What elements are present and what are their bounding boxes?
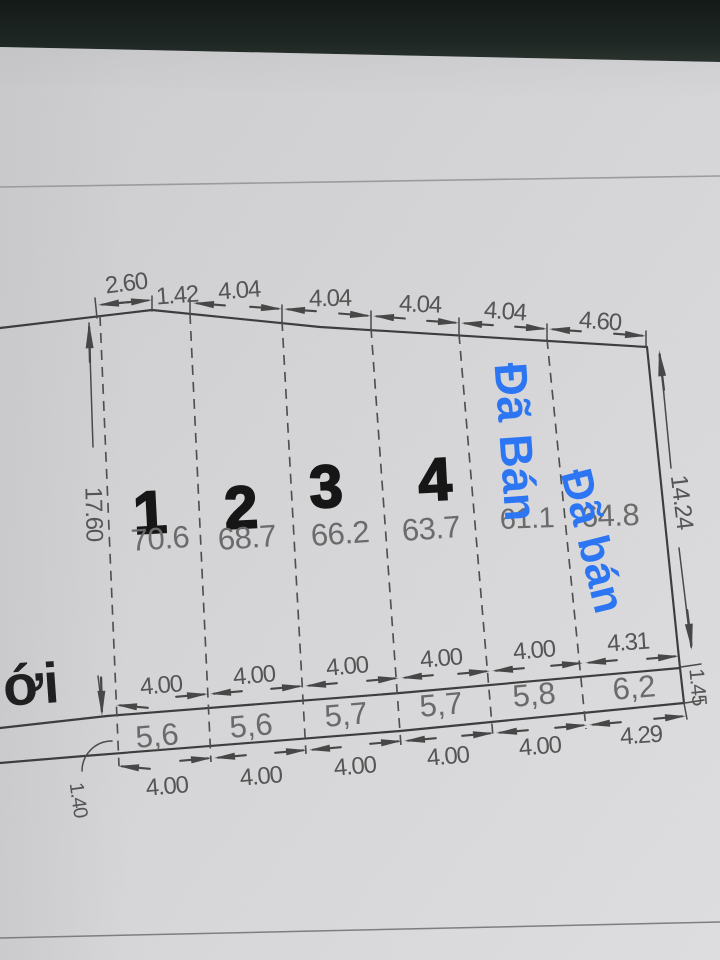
svg-text:4.31: 4.31 (606, 628, 651, 658)
svg-text:3: 3 (308, 452, 345, 521)
svg-text:4.04: 4.04 (399, 290, 443, 318)
svg-text:2.60: 2.60 (104, 267, 150, 299)
svg-text:4.00: 4.00 (232, 660, 277, 691)
svg-text:4.00: 4.00 (512, 635, 557, 666)
svg-text:4.60: 4.60 (578, 307, 623, 337)
svg-text:4.00: 4.00 (419, 643, 464, 674)
svg-text:63.7: 63.7 (401, 509, 462, 548)
svg-text:5,6: 5,6 (228, 706, 274, 745)
svg-text:1.42: 1.42 (155, 281, 200, 311)
svg-text:4.00: 4.00 (145, 771, 190, 802)
svg-text:5,7: 5,7 (323, 695, 369, 734)
svg-text:4.00: 4.00 (518, 731, 563, 762)
svg-text:4.04: 4.04 (483, 297, 528, 327)
svg-text:70.6: 70.6 (130, 519, 191, 558)
svg-text:ới: ới (1, 651, 62, 719)
svg-text:6,2: 6,2 (611, 668, 657, 707)
svg-text:5,7: 5,7 (418, 685, 464, 724)
svg-text:4.00: 4.00 (426, 741, 471, 772)
svg-text:4.00: 4.00 (239, 761, 284, 792)
svg-text:68.7: 68.7 (217, 518, 278, 557)
svg-text:4.04: 4.04 (217, 276, 262, 306)
svg-text:17.60: 17.60 (79, 487, 107, 543)
svg-text:Đã Bán: Đã Bán (485, 361, 548, 523)
svg-text:4.04: 4.04 (309, 285, 352, 313)
svg-text:5,8: 5,8 (511, 675, 557, 714)
svg-text:66.2: 66.2 (310, 514, 371, 553)
svg-text:4: 4 (417, 445, 454, 514)
svg-text:4.29: 4.29 (619, 721, 664, 751)
svg-text:4.00: 4.00 (333, 751, 378, 782)
svg-text:4.00: 4.00 (325, 651, 370, 682)
svg-text:1.45: 1.45 (684, 668, 710, 707)
svg-text:4.00: 4.00 (139, 670, 184, 701)
svg-text:5,6: 5,6 (134, 716, 180, 755)
